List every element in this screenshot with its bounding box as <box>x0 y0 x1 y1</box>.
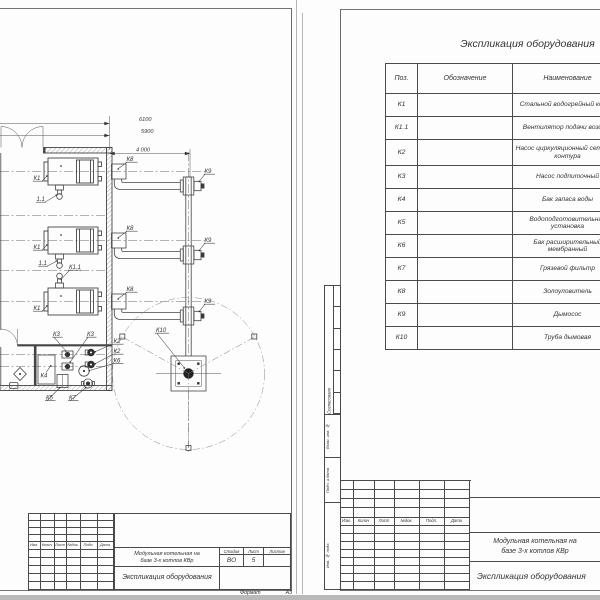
doc-number-cell <box>470 498 600 533</box>
doc-title-cell: Экспликация оборудования <box>115 567 219 590</box>
project-name-cell: Модульная котельная на базе 3-х котлов К… <box>470 533 600 562</box>
drawing-canvas: text{font-family:"Liberation Sans","Deja… <box>0 0 600 600</box>
signature-empty-cell <box>220 567 290 588</box>
boiler-flue-fittings <box>56 185 64 288</box>
designation-cell <box>418 189 513 212</box>
col-kolich: Колич <box>40 541 54 549</box>
name-cell: Грязевой фильтр <box>513 258 600 281</box>
side-door <box>1 329 18 346</box>
name-cell: Стальной водогрейный котел <box>513 94 600 117</box>
table-row: К9Дымосос <box>386 304 600 327</box>
title-block-right-part: Модульная котельная на базе 3-х котлов К… <box>469 497 600 590</box>
col-ndok: №док. <box>66 541 80 549</box>
entrance-double-door <box>1 127 43 148</box>
table-row: К5Водоподготовительная установка <box>386 212 600 235</box>
designation-cell <box>418 140 513 166</box>
revision-grid-left <box>28 513 116 591</box>
left-title-block: Изм. Колич Лист №док. Подп. Дата Модульн… <box>28 513 291 590</box>
right-title-block: Изм. Колич Лист №док. Подп. Дата Модульн… <box>340 480 600 590</box>
pos-cell: К1 <box>386 94 418 117</box>
pos-cell: К5 <box>386 212 418 235</box>
col-header-pos: Поз. <box>386 64 418 94</box>
name-cell: Вентилятор подачи воздуха <box>513 117 600 140</box>
pos-cell: К2 <box>386 140 418 166</box>
project-name-cell: Модульная котельная на базе 3-х котлов К… <box>115 548 219 567</box>
equipment-table: Поз. Обозначение Наименование К1Стальной… <box>385 63 600 350</box>
project-name-line1: Модульная котельная на <box>115 551 219 558</box>
col-podp: Подп. <box>419 517 444 525</box>
bottom-shadow-bar <box>0 595 600 600</box>
table-row: К10Труба дымовая <box>386 327 600 350</box>
name-cell: Водоподготовительная установка <box>513 212 600 235</box>
axis-centerlines <box>0 152 207 452</box>
col-header-designation: Обозначение <box>418 64 513 94</box>
name-cell: Насос подпиточный <box>513 166 600 189</box>
col-list: Лист <box>54 541 66 549</box>
strip-agreed-label: Согласовано <box>325 286 333 414</box>
designation-cell <box>418 166 513 189</box>
sheet-label: Лист <box>244 548 264 555</box>
strip-agreed-section: Согласовано <box>324 285 341 415</box>
table-row: К1.1Вентилятор подачи воздуха <box>386 117 600 140</box>
pos-cell: К9 <box>386 304 418 327</box>
designation-cell <box>418 258 513 281</box>
equipment-table-title: Экспликация оборудования <box>440 38 600 50</box>
guy-wires <box>123 337 255 448</box>
table-row: К2Насос циркуляционный сетевого контура <box>386 140 600 166</box>
table-row: К6Бак расширительный мембранный <box>386 235 600 258</box>
col-list: Лист <box>374 517 394 525</box>
strip-inv-label: Инв. № подл. <box>324 502 341 590</box>
table-row: К4Бак запаса воды <box>386 189 600 212</box>
dim-5900: 5900 <box>141 129 154 135</box>
stage-value-row: ВО 5 <box>220 555 290 567</box>
col-data: Дата <box>444 517 469 525</box>
name-cell: Дымосос <box>513 304 600 327</box>
side-strip: Согласовано Взам. инв. № Подп. и дата Ин… <box>324 285 341 590</box>
designation-cell <box>418 281 513 304</box>
boiler-k1-units <box>44 158 102 315</box>
col-data: Дата <box>97 541 113 549</box>
name-cell: Бак расширительный мембранный <box>513 235 600 258</box>
col-izm: Изм. <box>28 541 40 549</box>
revision-grid-left-header: Изм. Колич Лист №док. Подп. Дата <box>28 541 113 549</box>
stage-label: Стадия <box>220 548 244 555</box>
expansion-tank-k6 <box>79 366 89 376</box>
equipment-table-wrap: Поз. Обозначение Наименование К1Стальной… <box>385 63 600 350</box>
designation-cell <box>418 94 513 117</box>
pos-cell: К6 <box>386 235 418 258</box>
table-row: К1Стальной водогрейный котел <box>386 94 600 117</box>
building-walls <box>0 148 112 391</box>
name-cell: Золоуловитель <box>513 281 600 304</box>
strip-subst-label: Взам. инв. № <box>324 414 341 458</box>
revision-grid-header: Изм. Колич Лист №док. Подп. Дата <box>340 517 469 525</box>
strip-sign-date-label: Подп. и дата <box>324 457 341 503</box>
project-name-line1: Модульная котельная на <box>470 537 600 547</box>
format-label: Формат <box>240 590 261 596</box>
upper-empty-cell <box>115 514 290 548</box>
designation-cell <box>418 327 513 350</box>
pos-cell: К4 <box>386 189 418 212</box>
name-cell: Труба дымовая <box>513 327 600 350</box>
format-value: А3 <box>286 590 292 596</box>
col-header-name: Наименование <box>513 64 600 94</box>
name-cell: Бак запаса воды <box>513 189 600 212</box>
revision-grid <box>340 480 471 590</box>
pos-cell: К10 <box>386 327 418 350</box>
left-title-block-right-part: Модульная котельная на базе 3-х котлов К… <box>114 513 291 590</box>
col-kolich: Колич <box>353 517 374 525</box>
dimension-lines: 6100 5900 4 000 <box>0 116 190 177</box>
designation-cell <box>418 304 513 327</box>
pos-cell: К8 <box>386 281 418 304</box>
pos-cell: К7 <box>386 258 418 281</box>
project-name-line2: базе 3-х котлов КВр <box>115 558 219 565</box>
project-name-line2: базе 3-х котлов КВр <box>470 547 600 557</box>
table-row: К8Золоуловитель <box>386 281 600 304</box>
dim-4000: 4 000 <box>136 148 151 154</box>
storage-tank-k4 <box>38 355 55 384</box>
col-ndok: №док. <box>394 517 419 525</box>
pos-cell: К1.1 <box>386 117 418 140</box>
label-k4: К4 <box>41 374 49 380</box>
sheets-total <box>264 555 290 567</box>
table-row: К3Насос подпиточный <box>386 166 600 189</box>
strip-agreed-cells <box>333 286 341 414</box>
designation-cell <box>418 117 513 140</box>
stage-value: ВО <box>220 555 244 567</box>
designation-cell <box>418 212 513 235</box>
col-podp: Подп. <box>80 541 97 549</box>
pos-cell: К3 <box>386 166 418 189</box>
col-izm: Изм. <box>340 517 353 525</box>
interior-partitions <box>18 345 113 386</box>
format-note: Формат А3 <box>240 590 292 596</box>
sheet-number: 5 <box>244 555 264 567</box>
sheets-label: Листов <box>264 548 290 555</box>
doc-title-cell: Экспликация оборудования <box>470 562 600 590</box>
name-cell: Насос циркуляционный сетевого контура <box>513 140 600 166</box>
table-header-row: Поз. Обозначение Наименование <box>386 64 600 94</box>
stage-header-row: Стадия Лист Листов <box>220 548 290 555</box>
designation-cell <box>418 235 513 258</box>
dim-6100: 6100 <box>139 117 152 123</box>
table-row: К7Грязевой фильтр <box>386 258 600 281</box>
circulation-pumps-k2 <box>85 349 95 369</box>
